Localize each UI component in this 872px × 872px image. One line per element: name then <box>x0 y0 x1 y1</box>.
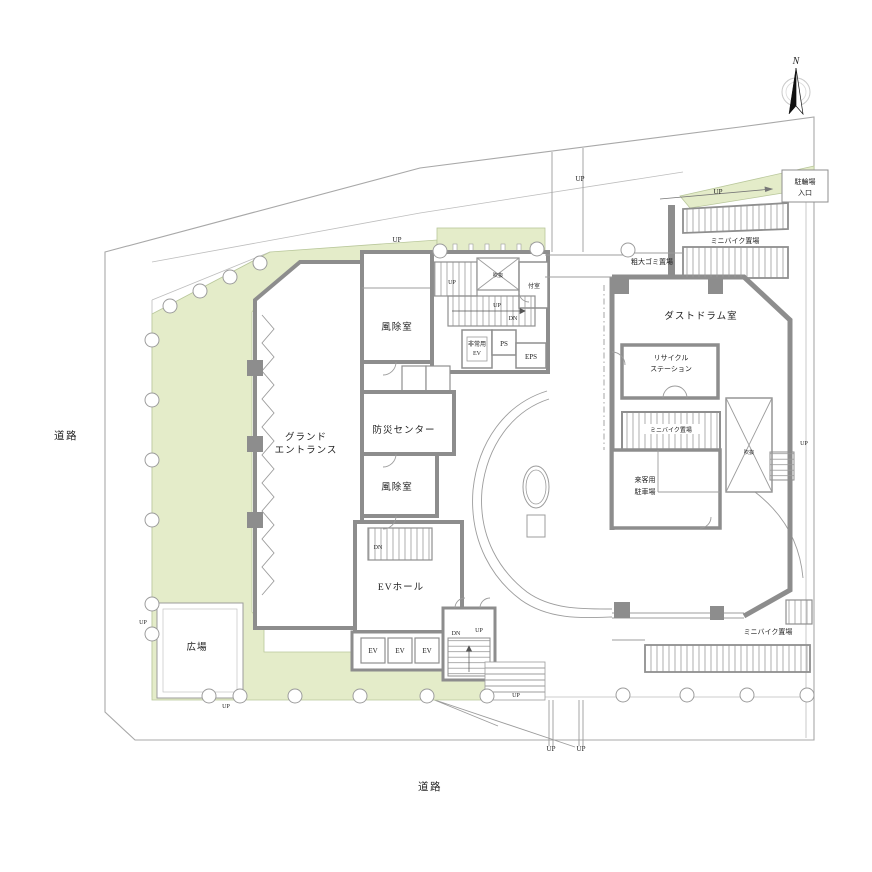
disaster-center-label: 防災センター <box>372 424 435 436</box>
up-top-ramp: UP <box>576 175 585 183</box>
windbreak-label-2: 風除室 <box>381 481 413 493</box>
up-arrow-topright: UP <box>714 188 723 196</box>
up-east-stair: UP <box>800 441 808 447</box>
visitor-parking-label-2: 駐車場 <box>635 487 656 496</box>
west-tower <box>247 252 548 700</box>
eps-label: EPS <box>525 353 537 361</box>
ev-hall-label: EVホール <box>378 582 424 593</box>
visitor-parking-label-1: 来客用 <box>635 475 656 484</box>
up-ramp-bottom-1: UP <box>547 745 556 753</box>
windbreak-room-1 <box>362 252 432 362</box>
north-compass: N <box>782 56 810 114</box>
up-entry-walk: UP <box>393 236 402 244</box>
up-ramp-bottom-2: UP <box>577 745 586 753</box>
recycle-label-2: ステーション <box>650 365 692 373</box>
bicycle-entrance-label-1: 駐輪場 <box>795 177 816 186</box>
ev-label-2: EV <box>395 647 404 655</box>
dn-evhall-stair: DN <box>374 545 383 551</box>
garbage-hatch <box>683 247 788 278</box>
minibike-hatch-bottom <box>645 645 810 672</box>
emergency-ev-label-1: 非常用 <box>468 340 486 348</box>
floor-plan-page: N 道路 道路 広場 グランド エントランス 風除室 防災センター 風除室 EV… <box>0 0 872 872</box>
up-stair2: UP <box>493 303 501 309</box>
bicycle-entrance-box <box>782 170 828 202</box>
road-label-left: 道路 <box>54 429 78 442</box>
windbreak-label-1: 風除室 <box>381 321 413 333</box>
visitor-parking <box>612 450 720 528</box>
bicycle-entrance-label-2: 入口 <box>798 189 812 197</box>
ev-label-1: EV <box>368 647 377 655</box>
emergency-elevator <box>462 330 492 368</box>
bulky-garbage-label: 粗大ゴミ置場 <box>631 257 673 266</box>
minibike-hatch-top <box>683 203 788 233</box>
grand-entrance-label-2: エントランス <box>275 445 338 456</box>
void-box-east <box>726 398 772 492</box>
minibike-label-top: ミニバイク置場 <box>711 236 760 245</box>
dn-south-stair: DN <box>452 631 461 637</box>
plaza-label: 広場 <box>186 641 207 653</box>
void-label-north: 吹抜 <box>493 271 504 279</box>
up-south-steps: UP <box>512 693 520 699</box>
dn-stair2: DN <box>509 316 518 322</box>
northeast-service-area <box>545 170 828 278</box>
void-label-east: 吹抜 <box>744 448 755 456</box>
road-label-bottom: 道路 <box>418 780 442 793</box>
compass-needle <box>789 68 796 114</box>
recycle-label-1: リサイクル <box>654 354 689 362</box>
ps-label: PS <box>500 340 508 348</box>
compass-n-label: N <box>792 56 801 67</box>
up-south-stair: UP <box>475 628 483 634</box>
ev-label-3: EV <box>422 647 431 655</box>
grand-entrance-label-1: グランド <box>285 431 327 443</box>
minibike-label-bottom: ミニバイク置場 <box>744 627 793 636</box>
minibike-label-mid: ミニバイク置場 <box>650 426 692 434</box>
dust-drum-label: ダストドラム室 <box>664 310 737 322</box>
floor-plan-drawing: N 道路 道路 広場 グランド エントランス 風除室 防災センター 風除室 EV… <box>0 0 872 872</box>
up-plaza-bottom: UP <box>222 704 230 710</box>
disaster-center <box>362 392 454 454</box>
up-stair1: UP <box>448 280 456 286</box>
emergency-ev-label-2: EV <box>473 351 482 357</box>
east-block <box>612 277 794 620</box>
attached-room-label: 付室 <box>528 282 540 290</box>
up-left-edge: UP <box>139 620 147 626</box>
